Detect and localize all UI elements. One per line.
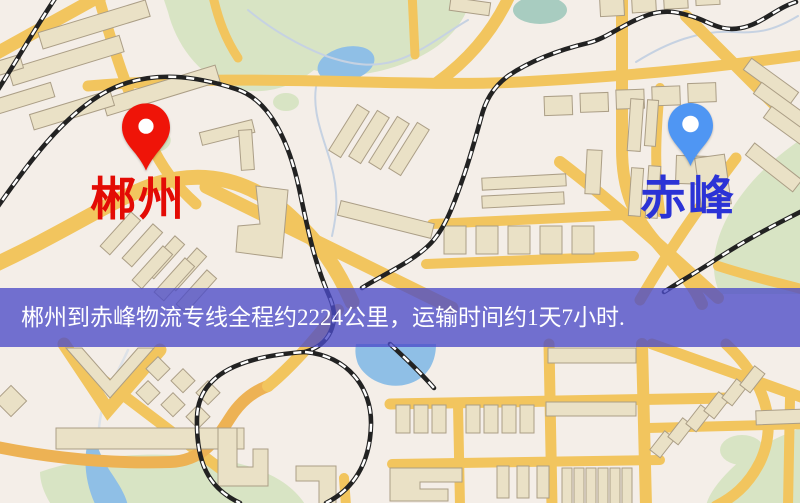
logistics-route-map: 郴州 赤峰 郴州到赤峰物流专线全程约2224公里，运输时间约1天7小时. [0,0,800,503]
route-info-banner: 郴州到赤峰物流专线全程约2224公里，运输时间约1天7小时. [0,288,800,347]
destination-pin-icon[interactable] [668,101,713,168]
origin-pin-body[interactable] [122,103,170,170]
destination-pin-hole [682,116,699,133]
origin-pin-icon[interactable] [122,102,170,172]
destination-city-label: 赤峰 [640,176,736,222]
destination-pin-body[interactable] [668,103,713,166]
origin-city-label: 郴州 [90,177,186,223]
route-info-text: 郴州到赤峰物流专线全程约2224公里，运输时间约1天7小时. [0,288,800,347]
origin-pin-hole [138,119,153,134]
map-canvas [0,0,800,503]
